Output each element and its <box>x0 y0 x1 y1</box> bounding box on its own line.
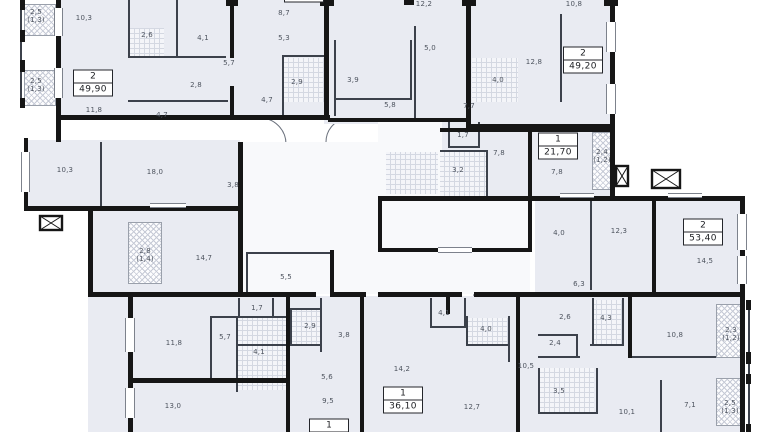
balcony-area-label: 2,5 (1,3) <box>27 8 45 24</box>
wall <box>20 0 25 10</box>
partition-wall <box>628 356 716 358</box>
wall <box>378 196 382 252</box>
elevator-icon <box>616 166 628 186</box>
room-area-label: 6,3 <box>573 280 585 288</box>
room-area-label: 7,7 <box>463 102 475 110</box>
room-area-label: 12,7 <box>464 403 480 411</box>
wall <box>528 128 532 252</box>
room-area-label: 2,6 <box>559 313 571 321</box>
partition-wall <box>538 334 578 336</box>
room-area-label: 4,1 <box>197 34 209 42</box>
apartment-info-box: 121,70 <box>538 133 578 160</box>
wall <box>628 296 632 358</box>
partition-wall <box>238 298 240 318</box>
room-area-label: 5,3 <box>278 34 290 42</box>
partition-wall <box>272 298 274 318</box>
core-corridor-area <box>382 198 530 250</box>
room-area-label: 10,3 <box>76 14 92 22</box>
room-area-label: 2,6 <box>141 31 153 39</box>
wall <box>330 292 366 297</box>
room-area-label: 5,7 <box>219 333 231 341</box>
partition-wall <box>414 26 416 118</box>
partition-wall <box>246 252 330 254</box>
room-area-label: 10,5 <box>518 362 534 370</box>
apartment-floor-area <box>24 140 240 208</box>
room-area-label: 4,1 <box>438 309 450 317</box>
bathroom-tile-floor <box>592 300 622 344</box>
partition-wall <box>336 98 410 100</box>
room-area-label: 14,5 <box>697 257 713 265</box>
partition-wall <box>622 298 624 346</box>
elevator-icon <box>40 216 62 230</box>
partition-wall <box>430 326 466 328</box>
room-area-label: 2,9 <box>291 78 303 86</box>
partition-wall <box>290 344 322 346</box>
partition-wall <box>20 0 22 108</box>
partition-wall <box>466 344 510 346</box>
apartment-info-box: 249,20 <box>563 47 603 74</box>
window <box>54 68 63 98</box>
window <box>54 8 63 36</box>
room-area-label: 10,8 <box>566 0 582 8</box>
partition-wall <box>508 316 510 362</box>
wall <box>328 118 468 122</box>
wall <box>474 292 745 297</box>
room-area-label: 7,8 <box>493 149 505 157</box>
window <box>737 214 747 250</box>
partition-wall <box>590 200 592 290</box>
partition-wall <box>660 380 662 432</box>
apartment-area-value: 53,40 <box>684 233 722 245</box>
apartment-rooms-count: 1 <box>539 134 577 147</box>
apartment-floor-area <box>324 0 471 124</box>
apartment-rooms-count: 1 <box>310 420 348 432</box>
wall <box>746 424 751 432</box>
room-area-label: 2,4 <box>549 339 561 347</box>
room-area-label: 4,7 <box>156 111 168 119</box>
partition-wall <box>176 0 178 58</box>
balcony-area-label: 2,5 (1,3) <box>721 399 739 415</box>
balcony-area-label: 2,3 (1,2) <box>722 326 740 342</box>
floor-plan: 2,5 (1,3)10,32,64,15,72,82,5 (1,3)11,84,… <box>0 0 768 432</box>
window <box>606 84 616 114</box>
partition-wall <box>410 40 412 100</box>
apartment-area-value: 36,10 <box>384 401 422 413</box>
window <box>737 256 747 284</box>
window <box>668 193 702 198</box>
wall <box>746 352 751 364</box>
partition-wall <box>128 100 228 102</box>
partition-wall <box>100 142 102 206</box>
partition-wall <box>284 55 328 57</box>
apartment-rooms-count: 2 <box>684 220 722 233</box>
room-area-label: 10,1 <box>619 408 635 416</box>
room-area-label: 4,7 <box>261 96 273 104</box>
partition-wall <box>282 55 284 117</box>
apartment-area-value: 49,20 <box>564 61 602 73</box>
partition-wall <box>210 316 212 382</box>
room-area-label: 1,7 <box>457 131 469 139</box>
wall <box>56 115 330 120</box>
core-corridor-area <box>332 250 530 294</box>
room-area-label: 7,1 <box>684 401 696 409</box>
wall <box>324 0 329 120</box>
window <box>606 22 616 52</box>
wall <box>20 98 25 108</box>
wall <box>462 0 476 6</box>
partition-wall <box>290 308 292 346</box>
partition-wall <box>128 56 226 58</box>
apartment-area-value: 21,70 <box>539 147 577 159</box>
apartment-info-box: 25,00 <box>284 0 324 3</box>
partition-wall <box>320 298 322 352</box>
partition-wall <box>440 150 486 152</box>
apartment-info-box: 249,90 <box>73 70 113 97</box>
room-area-label: 4,0 <box>553 229 565 237</box>
wall <box>230 0 234 58</box>
window <box>438 247 472 253</box>
wall <box>128 378 290 383</box>
wall <box>652 196 656 294</box>
wall <box>330 250 334 296</box>
room-area-label: 8,7 <box>278 9 290 17</box>
room-area-label: 4,3 <box>600 314 612 322</box>
room-area-label: 4,1 <box>253 348 265 356</box>
room-area-label: 4,0 <box>480 325 492 333</box>
wall <box>746 300 751 310</box>
wall <box>88 292 316 297</box>
room-area-label: 9,5 <box>322 397 334 405</box>
partition-wall <box>592 298 594 346</box>
partition-wall <box>128 0 130 58</box>
balcony-area-label: 2,8 (1,4) <box>136 247 154 263</box>
wall <box>604 0 618 6</box>
partition-wall <box>538 356 580 358</box>
apartment-rooms-count: 2 <box>564 48 602 61</box>
room-area-label: 2,8 <box>190 81 202 89</box>
room-area-label: 4,0 <box>492 76 504 84</box>
room-area-label: 12,2 <box>416 0 432 8</box>
room-area-label: 11,8 <box>86 106 102 114</box>
room-area-label: 3,8 <box>338 331 350 339</box>
wall <box>20 60 25 72</box>
bathroom-tile-floor <box>386 152 438 194</box>
wall <box>226 0 238 6</box>
room-area-label: 5,0 <box>424 44 436 52</box>
room-area-label: 13,0 <box>165 402 181 410</box>
partition-wall <box>596 368 598 414</box>
partition-wall <box>590 344 624 346</box>
partition-wall <box>448 122 450 148</box>
wall <box>20 30 25 42</box>
apartment-rooms-count: 2 <box>74 71 112 84</box>
room-area-label: 3,2 <box>452 166 464 174</box>
room-area-label: 5,8 <box>384 101 396 109</box>
room-area-label: 3,8 <box>227 181 239 189</box>
wall <box>88 206 93 296</box>
apartment-floor-area <box>535 196 745 296</box>
partition-wall <box>210 316 288 318</box>
room-area-label: 18,0 <box>147 168 163 176</box>
partition-wall <box>466 316 468 346</box>
room-area-label: 12,8 <box>526 58 542 66</box>
window <box>150 203 186 208</box>
room-area-label: 3,5 <box>553 387 565 395</box>
partition-wall <box>576 334 578 358</box>
room-area-label: 12,3 <box>611 227 627 235</box>
partition-wall <box>486 150 488 196</box>
room-area-label: 10,8 <box>667 331 683 339</box>
wall <box>746 374 751 384</box>
partition-wall <box>334 40 336 116</box>
room-area-label: 11,8 <box>166 339 182 347</box>
partition-wall <box>246 252 248 292</box>
room-area-label: 5,6 <box>321 373 333 381</box>
room-area-label: 14,7 <box>196 254 212 262</box>
apartment-area-value: 49,90 <box>74 84 112 96</box>
wall <box>24 206 240 211</box>
partition-wall <box>748 300 750 432</box>
window <box>125 318 135 352</box>
window <box>125 388 135 418</box>
door-swing-arc <box>260 118 286 144</box>
partition-wall <box>236 344 288 346</box>
partition-wall <box>540 412 598 414</box>
balcony-area-label: 2,4 (1,2) <box>593 148 611 164</box>
bathroom-tile-floor <box>440 152 486 196</box>
apartment-info-box: 136,10 <box>383 387 423 414</box>
room-area-label: 14,2 <box>394 365 410 373</box>
partition-wall <box>290 308 320 310</box>
partition-wall <box>560 14 562 102</box>
partition-wall <box>538 368 540 414</box>
elevator-icon <box>652 170 680 188</box>
partition-wall <box>448 146 478 148</box>
apartment-rooms-count: 1 <box>384 388 422 401</box>
apartment-area-value: 25,00 <box>285 0 323 2</box>
partition-wall <box>430 298 432 326</box>
room-area-label: 5,5 <box>280 273 292 281</box>
wall <box>378 292 462 297</box>
apartment-info-box: 253,40 <box>683 219 723 246</box>
room-area-label: 10,3 <box>57 166 73 174</box>
room-area-label: 2,9 <box>304 322 316 330</box>
room-area-label: 3,9 <box>347 76 359 84</box>
room-area-label: 1,7 <box>251 304 263 312</box>
room-area-label: 7,8 <box>551 168 563 176</box>
window <box>560 193 594 198</box>
apartment-info-box: 1 <box>309 419 349 432</box>
room-area-label: 5,7 <box>223 59 235 67</box>
wall <box>286 296 290 432</box>
balcony-area-label: 2,5 (1,3) <box>27 77 45 93</box>
wall <box>404 0 414 5</box>
wall <box>238 142 243 294</box>
bathroom-tile-floor <box>540 368 594 412</box>
wall <box>360 296 364 432</box>
window <box>21 152 30 192</box>
